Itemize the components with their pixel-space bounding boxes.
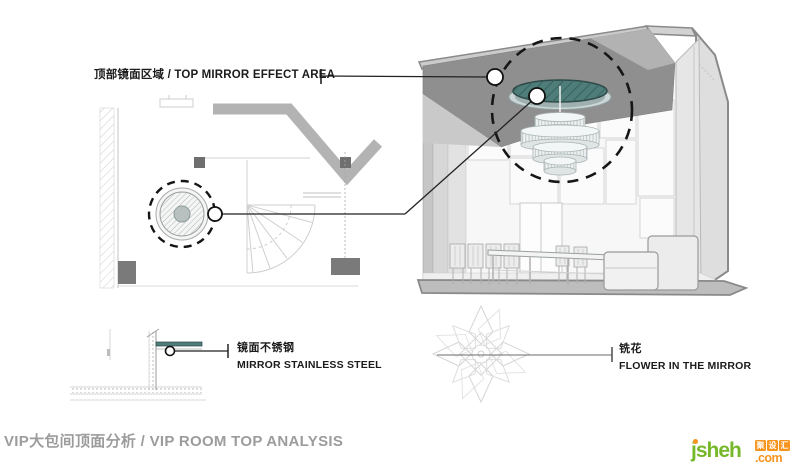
jsheh-logo-wordmark: jsheh — [691, 438, 741, 464]
mirror-stainless-steel-label-zh: 镜面不锈钢 — [237, 339, 382, 355]
jsheh-logo[interactable]: jsheh 聚 设 汇 .com — [691, 437, 797, 468]
mirror-callout-point — [529, 88, 545, 104]
ceiling-callout-point — [487, 69, 503, 85]
section-detail-drawing — [70, 329, 228, 400]
plan-column — [331, 258, 360, 275]
jsheh-logo-tld: .com — [755, 451, 795, 465]
plan-column — [194, 157, 205, 168]
flower-pattern — [432, 305, 612, 403]
plan-mirror-feature — [149, 181, 215, 247]
section-callout-point — [166, 347, 175, 356]
plan-callout-point — [208, 207, 222, 221]
room-3d-view — [418, 26, 746, 295]
mirror-stainless-steel-label: 镜面不锈钢 MIRROR STAINLESS STEEL — [237, 339, 382, 371]
page-title: VIP大包间顶面分析 / VIP ROOM TOP ANALYSIS — [4, 430, 343, 451]
plan-zigzag-wall-band — [213, 109, 378, 177]
mirror-stainless-steel-label-en: MIRROR STAINLESS STEEL — [237, 359, 382, 371]
plan-hatched-wall — [100, 108, 114, 288]
plan-column — [118, 261, 136, 284]
flower-in-mirror-label-zh: 铣花 — [619, 340, 751, 356]
flower-in-mirror-label-en: FLOWER IN THE MIRROR — [619, 360, 751, 372]
sofa-seat — [604, 252, 658, 290]
jsheh-logo-badge: 聚 设 汇 — [755, 440, 795, 451]
stainless-steel-strip — [156, 342, 202, 346]
plan-drawing — [100, 95, 378, 288]
flower-in-mirror-label: 铣花 FLOWER IN THE MIRROR — [619, 340, 751, 372]
room-roof-slab — [646, 26, 698, 36]
top-mirror-area-label: 顶部镜面区域 / TOP MIRROR EFFECT AREA — [94, 66, 335, 82]
jsheh-logo-dot — [693, 439, 698, 444]
plan-stair-fan — [247, 205, 315, 273]
